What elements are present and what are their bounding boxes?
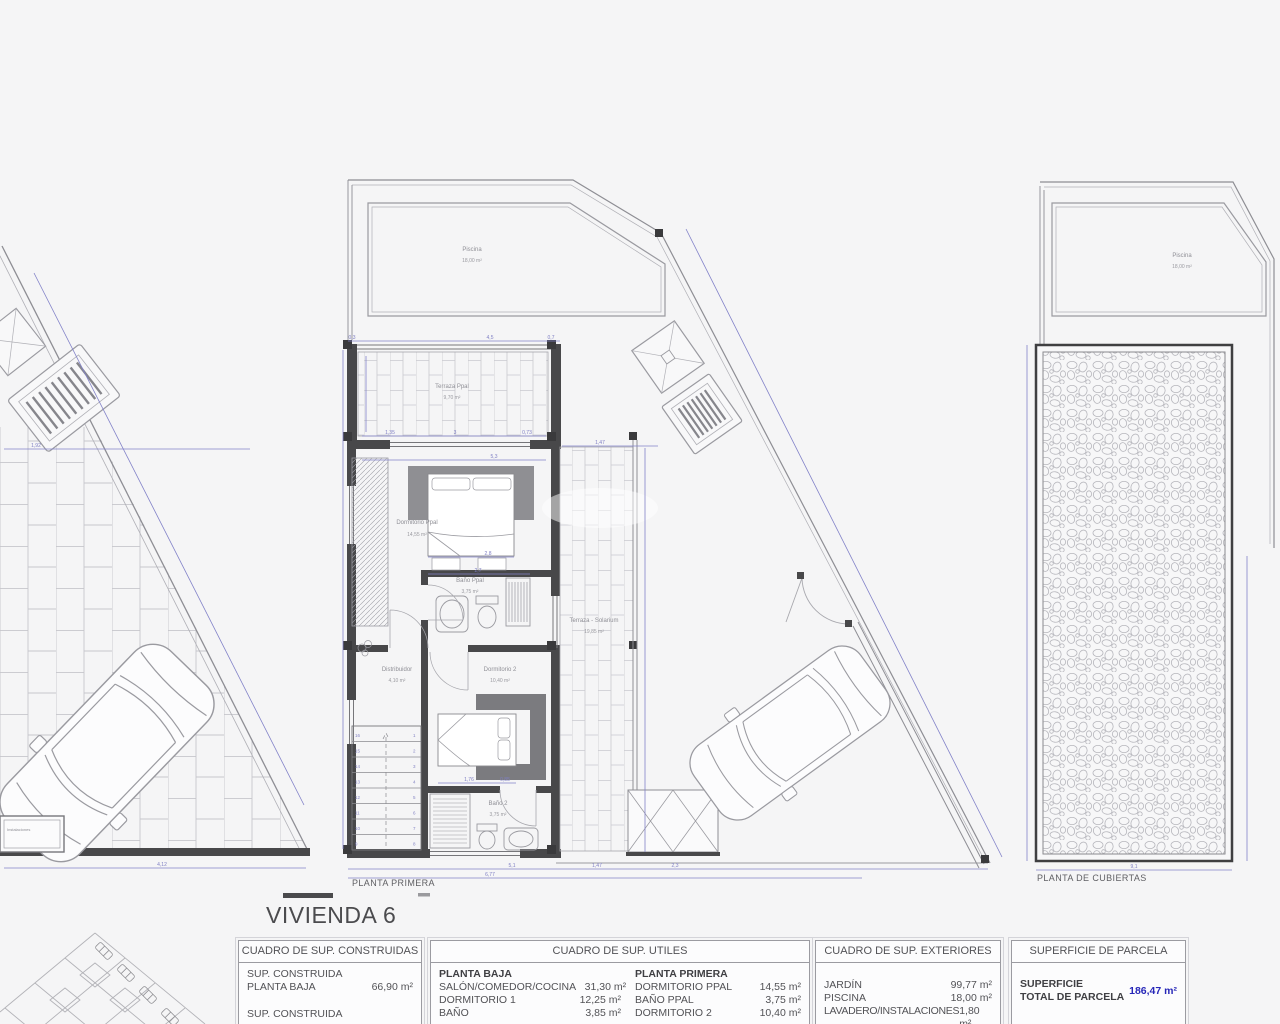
table-cell: 3,75 m² (751, 994, 801, 1007)
left-plot-plan: Instalaciones (0, 246, 310, 880)
dim-label: 1,76 (464, 777, 474, 783)
svg-text:1: 1 (413, 733, 416, 738)
dim-label: 1,47 (592, 863, 602, 869)
column-title: PLANTA BAJA (439, 968, 621, 981)
dim-label: 4,12 (157, 862, 167, 868)
room-area-piscina-roof: 18,00 m² (1172, 264, 1192, 270)
table-column-planta-primera: PLANTA PRIMERA DORMITORIO PPAL 14,55 m² … (621, 968, 801, 1020)
svg-text:6: 6 (413, 811, 416, 816)
dim-label: 4,5 (487, 335, 494, 341)
roof-plan (1027, 182, 1274, 870)
table-sup-exteriores: CUADRO DE SUP. EXTERIORES JARDÍN 99,77 m… (815, 940, 1001, 1024)
table-cell: 12,25 m² (571, 994, 621, 1007)
table-row: BAÑO 3,85 m² (439, 1007, 621, 1020)
table-header: SUPERFICIE DE PARCELA (1012, 941, 1185, 963)
table-cell: 18,00 m² (942, 992, 992, 1005)
terrace-ppal (347, 344, 561, 440)
svg-text:14: 14 (355, 764, 361, 769)
room-area-piscina: 18,00 m² (462, 258, 482, 264)
table-cell: PISCINA (824, 992, 866, 1005)
table-cell: 1,80 m² (959, 1005, 992, 1024)
room-label-piscina-roof: Piscina (1172, 253, 1191, 259)
table-sup-construidas: CUADRO DE SUP. CONSTRUIDAS SUP. CONSTRUI… (238, 940, 422, 1024)
stairs: 16 15 14 13 12 11 10 9 1 2 3 4 5 6 7 8 (352, 726, 421, 850)
svg-text:10: 10 (355, 826, 361, 831)
room-label-dormitorio-ppal: Dormitorio Ppal (396, 520, 437, 526)
dim-label: 1,92 (31, 443, 41, 449)
svg-text:16: 16 (355, 733, 361, 738)
dim-label: 1,35 (385, 430, 395, 436)
table-cell: DORMITORIO PPAL (635, 981, 732, 994)
room-label-dormitorio-2: Dormitorio 2 (484, 667, 517, 673)
table-cell: DORMITORIO 1 (439, 994, 516, 1007)
table-row: DORMITORIO 2 10,40 m² (635, 1007, 801, 1020)
room-area-bano-ppal: 3,75 m² (462, 589, 479, 595)
table-cell: SUPERFICIE (1020, 978, 1124, 991)
dim-label: 0,73 (522, 430, 532, 436)
first-floor-plan: 16 15 14 13 12 11 10 9 1 2 3 4 5 6 7 8 (343, 180, 1002, 878)
dim-label: 2,3 (672, 863, 679, 869)
table-superficie-parcela: SUPERFICIE DE PARCELA SUPERFICIE TOTAL D… (1011, 940, 1186, 1024)
roof-slab (1036, 345, 1232, 861)
car-icon (161, 1008, 179, 1024)
svg-text:8: 8 (413, 842, 416, 847)
dim-label: 3 (454, 430, 457, 436)
table-cell: SALÓN/COMEDOR/COCINA (439, 981, 576, 994)
svg-text:4: 4 (413, 780, 416, 785)
svg-text:3: 3 (413, 764, 416, 769)
car-icon (117, 964, 135, 982)
room-label-piscina: Piscina (462, 247, 481, 253)
plan-caption-planta-cubiertas: PLANTA DE CUBIERTAS (1037, 873, 1147, 883)
room-area-bano-2: 3,75 m² (490, 812, 507, 818)
plan-caption-planta-primera: PLANTA PRIMERA (352, 878, 435, 888)
table-cell: BAÑO (439, 1007, 469, 1020)
room-label-bano-ppal: Baño Ppal (456, 578, 484, 584)
dim-label: 5,1 (509, 863, 516, 869)
svg-text:15: 15 (355, 749, 361, 754)
table-cell: PLANTA BAJA (247, 981, 316, 994)
table-row: SALÓN/COMEDOR/COCINA 31,30 m² (439, 981, 621, 994)
total-parcel-value: 186,47 m² (1129, 985, 1177, 998)
table-cell: 66,90 m² (363, 981, 413, 994)
dim-label: 0,85 (500, 777, 510, 783)
table-cell: BAÑO PPAL (635, 994, 694, 1007)
table-header: CUADRO DE SUP. CONSTRUIDAS (239, 941, 421, 963)
table-cell: 10,40 m² (751, 1007, 801, 1020)
dim-label: 1,47 (595, 440, 605, 446)
table-header: CUADRO DE SUP. EXTERIORES (816, 941, 1000, 963)
svg-text:7: 7 (413, 826, 416, 831)
dim-label: 6,77 (485, 872, 495, 878)
table-row: PLANTA BAJA 66,90 m² (247, 981, 413, 994)
room-area-terraza-solarium: 19,85 m² (584, 629, 604, 635)
table-sup-utiles: CUADRO DE SUP. UTILES PLANTA BAJA SALÓN/… (430, 940, 810, 1024)
table-row: LAVADERO/INSTALACIONES 1,80 m² (824, 1005, 992, 1024)
page-title: VIVIENDA 6 (266, 902, 396, 929)
table-cell: TOTAL DE PARCELA (1020, 991, 1124, 1004)
bathroom-2 (430, 794, 538, 850)
table-column-planta-baja: PLANTA BAJA SALÓN/COMEDOR/COCINA 31,30 m… (439, 968, 621, 1020)
room-label-terraza-ppal: Terraza Ppal (435, 384, 469, 390)
skylight-icon (632, 321, 704, 393)
table-cell: 99,77 m² (942, 979, 992, 992)
dim-label: 0,7 (548, 335, 555, 341)
room-area-terraza-ppal: 9,70 m² (444, 395, 461, 401)
table-row: BAÑO PPAL 3,75 m² (635, 994, 801, 1007)
svg-text:5: 5 (413, 795, 416, 800)
table-cell: 14,55 m² (751, 981, 801, 994)
driveway-gate (626, 790, 720, 856)
stair-numbers: 16 15 14 13 12 11 10 9 1 2 3 4 5 6 7 8 (355, 733, 416, 847)
instalaciones-box: Instalaciones (0, 816, 64, 852)
room-area-distribuidor: 4,10 m² (389, 678, 406, 684)
table-row: DORMITORIO PPAL 14,55 m² (635, 981, 801, 994)
pool-outline (368, 203, 665, 316)
room-label-terraza-solarium: Terraza - Solarium (569, 618, 618, 624)
svg-text:13: 13 (355, 780, 361, 785)
bathroom-ppal (428, 578, 530, 632)
vent-grille-icon (662, 374, 743, 455)
table-cell: SUP. CONSTRUIDA (247, 1008, 413, 1021)
room-label-bano-2: Baño 2 (488, 801, 507, 807)
svg-text:9: 9 (355, 842, 358, 847)
table-row: DORMITORIO 1 12,25 m² (439, 994, 621, 1007)
room-label-distribuidor: Distribuidor (382, 667, 412, 673)
dim-label: 2,8 (485, 551, 492, 557)
bed-2 (438, 694, 546, 780)
svg-text:11: 11 (355, 811, 360, 816)
svg-text:Instalaciones: Instalaciones (7, 827, 30, 832)
car-icon (95, 942, 113, 960)
svg-text:12: 12 (355, 795, 361, 800)
room-area-dormitorio-2: 10,40 m² (490, 678, 510, 684)
table-cell: 31,30 m² (576, 981, 626, 994)
bed-ppal (408, 466, 534, 570)
table-cell: JARDÍN (824, 979, 862, 992)
room-area-dormitorio-ppal: 14,55 m² (407, 532, 427, 538)
table-cell: SUP. CONSTRUIDA (247, 968, 413, 981)
dim-label: 9,1 (1131, 864, 1138, 870)
pool-outline (1052, 203, 1266, 316)
architectural-drawing-sheet: Instalaciones (0, 0, 1280, 1024)
column-title: PLANTA PRIMERA (635, 968, 801, 981)
dim-label: 2,7 (475, 568, 482, 574)
table-cell: LAVADERO/INSTALACIONES (824, 1005, 959, 1024)
inner-fence (853, 622, 984, 868)
plan-linework: Instalaciones (0, 0, 1280, 1024)
table-row: PISCINA 18,00 m² (824, 992, 992, 1005)
wardrobe (352, 458, 388, 626)
svg-text:2: 2 (413, 749, 416, 754)
table-row: JARDÍN 99,77 m² (824, 979, 992, 992)
dim-label: 0,3 (349, 335, 356, 341)
table-cell: DORMITORIO 2 (635, 1007, 712, 1020)
table-cell: 3,85 m² (571, 1007, 621, 1020)
dim-label: 5,3 (491, 454, 498, 460)
table-header: CUADRO DE SUP. UTILES (431, 941, 809, 963)
